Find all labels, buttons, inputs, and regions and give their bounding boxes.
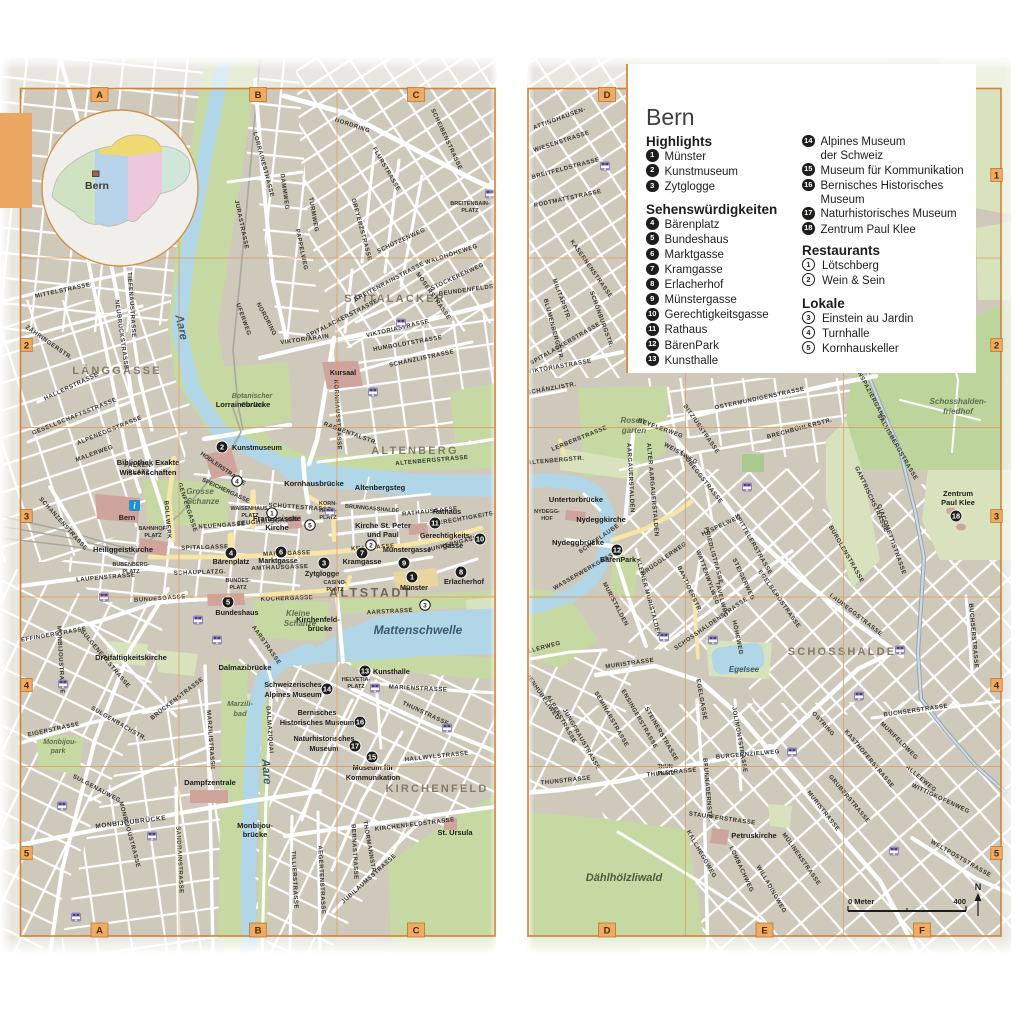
svg-text:Egelsee: Egelsee xyxy=(729,665,760,674)
svg-text:Monbijou-: Monbijou- xyxy=(237,821,273,830)
svg-text:PLATZ: PLATZ xyxy=(347,684,365,690)
svg-text:Mattenschwelle: Mattenschwelle xyxy=(374,623,463,637)
svg-text:D: D xyxy=(604,90,611,101)
svg-text:3: 3 xyxy=(24,512,29,523)
svg-text:14: 14 xyxy=(323,685,332,694)
svg-text:park: park xyxy=(50,748,67,755)
svg-text:Zentrum: Zentrum xyxy=(943,489,973,498)
svg-text:5: 5 xyxy=(24,849,30,860)
svg-text:Dreifaltigkeitskirche: Dreifaltigkeitskirche xyxy=(95,653,167,662)
svg-text:Zytglogge: Zytglogge xyxy=(305,569,339,578)
svg-text:4: 4 xyxy=(24,681,30,692)
svg-text:Rathaus: Rathaus xyxy=(433,507,461,516)
svg-text:Bibliothek Exakte: Bibliothek Exakte xyxy=(117,458,180,467)
svg-text:13: 13 xyxy=(361,667,369,676)
svg-text:Schosshalden-: Schosshalden- xyxy=(930,397,987,406)
svg-text:N: N xyxy=(975,882,982,892)
svg-text:Bernisches: Bernisches xyxy=(298,708,337,717)
svg-text:10: 10 xyxy=(476,535,484,544)
svg-text:Alpines Museum: Alpines Museum xyxy=(264,690,321,699)
svg-text:PLATZ: PLATZ xyxy=(461,208,479,214)
svg-text:Altenbergsteg: Altenbergsteg xyxy=(355,483,406,492)
svg-text:BUNDES-: BUNDES- xyxy=(225,578,250,584)
svg-text:HOF: HOF xyxy=(541,516,553,522)
svg-text:HELVETIA-: HELVETIA- xyxy=(342,677,371,683)
svg-text:Aare: Aare xyxy=(259,757,273,785)
svg-text:WAISENHAUS-: WAISENHAUS- xyxy=(230,506,269,512)
svg-text:2: 2 xyxy=(369,542,373,549)
svg-text:KORN-: KORN- xyxy=(319,501,337,507)
svg-text:Nydeggkirche: Nydeggkirche xyxy=(576,515,626,524)
svg-text:Kirche St. Peter: Kirche St. Peter xyxy=(355,521,411,530)
svg-text:Gerechtigkeits-: Gerechtigkeits- xyxy=(420,531,473,540)
svg-text:Grosse: Grosse xyxy=(186,487,214,496)
svg-text:gasse: gasse xyxy=(443,541,463,550)
svg-text:NYDEGG-: NYDEGG- xyxy=(534,509,560,515)
svg-text:brücke: brücke xyxy=(243,830,268,839)
svg-text:4: 4 xyxy=(994,681,1000,692)
svg-text:BAHNHOF-: BAHNHOF- xyxy=(138,526,167,532)
svg-text:Kunsthalle: Kunsthalle xyxy=(373,667,410,676)
svg-text:Monbijou-: Monbijou- xyxy=(43,739,77,746)
svg-text:Paul Klee: Paul Klee xyxy=(941,498,975,507)
svg-text:Bern: Bern xyxy=(85,180,109,192)
svg-text:18: 18 xyxy=(952,512,960,521)
svg-text:PLATZ: PLATZ xyxy=(326,587,344,593)
svg-text:Wissenschaften: Wissenschaften xyxy=(119,468,176,477)
svg-text:0 Meter: 0 Meter xyxy=(848,897,874,906)
svg-text:BUBENBERG-: BUBENBERG- xyxy=(112,562,149,568)
svg-text:1: 1 xyxy=(994,171,1000,182)
svg-text:1: 1 xyxy=(270,510,274,517)
svg-text:friedhof: friedhof xyxy=(943,407,974,416)
svg-text:bad: bad xyxy=(233,709,247,718)
svg-text:5: 5 xyxy=(308,522,312,529)
svg-text:Münster: Münster xyxy=(400,583,428,592)
svg-text:Schanze: Schanze xyxy=(187,497,220,506)
svg-text:Kirchenfeld-: Kirchenfeld- xyxy=(296,615,340,624)
svg-text:A: A xyxy=(96,926,103,937)
svg-text:Nydeggbrücke: Nydeggbrücke xyxy=(552,538,604,547)
svg-text:PLATZ: PLATZ xyxy=(229,585,247,591)
svg-text:2: 2 xyxy=(994,341,999,352)
svg-text:Schweizerisches: Schweizerisches xyxy=(264,680,322,689)
svg-text:CASINO-: CASINO- xyxy=(323,580,346,586)
svg-text:Museum: Museum xyxy=(309,744,338,753)
svg-text:3: 3 xyxy=(994,512,999,523)
svg-text:KIRCHENFELD: KIRCHENFELD xyxy=(385,783,488,795)
svg-text:Dalmazibrücke: Dalmazibrücke xyxy=(219,663,272,672)
svg-text:Dählhölzliwald: Dählhölzliwald xyxy=(586,872,663,884)
svg-text:9: 9 xyxy=(402,559,406,568)
svg-text:E: E xyxy=(761,926,767,937)
svg-text:12: 12 xyxy=(613,546,621,555)
svg-text:Marktgasse: Marktgasse xyxy=(258,556,298,565)
svg-text:5: 5 xyxy=(994,849,1000,860)
svg-text:BärenPark: BärenPark xyxy=(600,555,636,564)
svg-text:C: C xyxy=(413,926,420,937)
svg-text:Kommunikation: Kommunikation xyxy=(346,773,400,782)
svg-text:brücke: brücke xyxy=(308,624,333,633)
svg-text:Bärenplatz: Bärenplatz xyxy=(213,557,250,566)
svg-text:und Paul: und Paul xyxy=(367,530,399,539)
svg-text:2: 2 xyxy=(220,443,224,452)
svg-text:Heiliggeistkirche: Heiliggeistkirche xyxy=(93,545,153,554)
svg-text:F: F xyxy=(919,926,925,937)
svg-text:Museum für: Museum für xyxy=(353,763,394,772)
svg-text:400: 400 xyxy=(953,897,966,906)
svg-text:Petruskirche: Petruskirche xyxy=(731,831,776,840)
svg-text:3: 3 xyxy=(423,602,427,609)
svg-text:Bundeshaus: Bundeshaus xyxy=(215,608,258,617)
svg-text:B: B xyxy=(255,90,262,101)
svg-text:Untertorbrücke: Untertorbrücke xyxy=(549,495,603,504)
svg-text:ALTENBERG: ALTENBERG xyxy=(371,445,458,457)
svg-text:16: 16 xyxy=(356,718,364,727)
svg-text:Erlacherhof: Erlacherhof xyxy=(444,577,485,586)
svg-text:2: 2 xyxy=(24,341,29,352)
svg-text:Bern: Bern xyxy=(119,513,135,522)
svg-text:A: A xyxy=(96,90,103,101)
svg-text:St. Ursula: St. Ursula xyxy=(437,828,473,837)
svg-text:8: 8 xyxy=(459,568,463,577)
svg-text:Kramgasse: Kramgasse xyxy=(343,557,382,566)
svg-text:PLATZ: PLATZ xyxy=(657,771,675,777)
svg-text:Historisches Museum: Historisches Museum xyxy=(280,718,354,727)
svg-text:B: B xyxy=(255,926,262,937)
svg-text:D: D xyxy=(604,926,611,937)
svg-text:Münstergasse: Münstergasse xyxy=(383,545,431,554)
svg-text:C: C xyxy=(413,90,420,101)
svg-text:Naturhistorisches: Naturhistorisches xyxy=(293,734,354,743)
svg-text:PLATZ: PLATZ xyxy=(144,533,162,539)
svg-text:BREITENBAIN-: BREITENBAIN- xyxy=(450,201,490,207)
svg-text:Kornhausbrücke: Kornhausbrücke xyxy=(284,479,344,488)
svg-text:Lorrainebrücke: Lorrainebrücke xyxy=(216,400,271,409)
svg-text:THUN-: THUN- xyxy=(657,764,674,770)
svg-text:Dampfzentrale: Dampfzentrale xyxy=(184,778,236,787)
svg-text:Kirche: Kirche xyxy=(265,523,288,532)
svg-text:4: 4 xyxy=(235,478,239,485)
svg-text:Kunstmuseum: Kunstmuseum xyxy=(232,443,282,452)
svg-text:PLATZ: PLATZ xyxy=(122,569,140,575)
svg-text:Kursaal: Kursaal xyxy=(330,368,356,377)
svg-text:Botanischer: Botanischer xyxy=(232,393,274,400)
svg-text:5: 5 xyxy=(226,598,230,607)
svg-text:LÄNGGASSE: LÄNGGASSE xyxy=(72,364,161,377)
svg-text:1: 1 xyxy=(410,573,414,582)
svg-text:3: 3 xyxy=(322,559,326,568)
svg-text:11: 11 xyxy=(431,519,439,528)
svg-text:15: 15 xyxy=(368,753,376,762)
svg-text:Marzili-: Marzili- xyxy=(227,699,253,708)
svg-text:SCHOSSHALDE: SCHOSSHALDE xyxy=(788,646,897,658)
